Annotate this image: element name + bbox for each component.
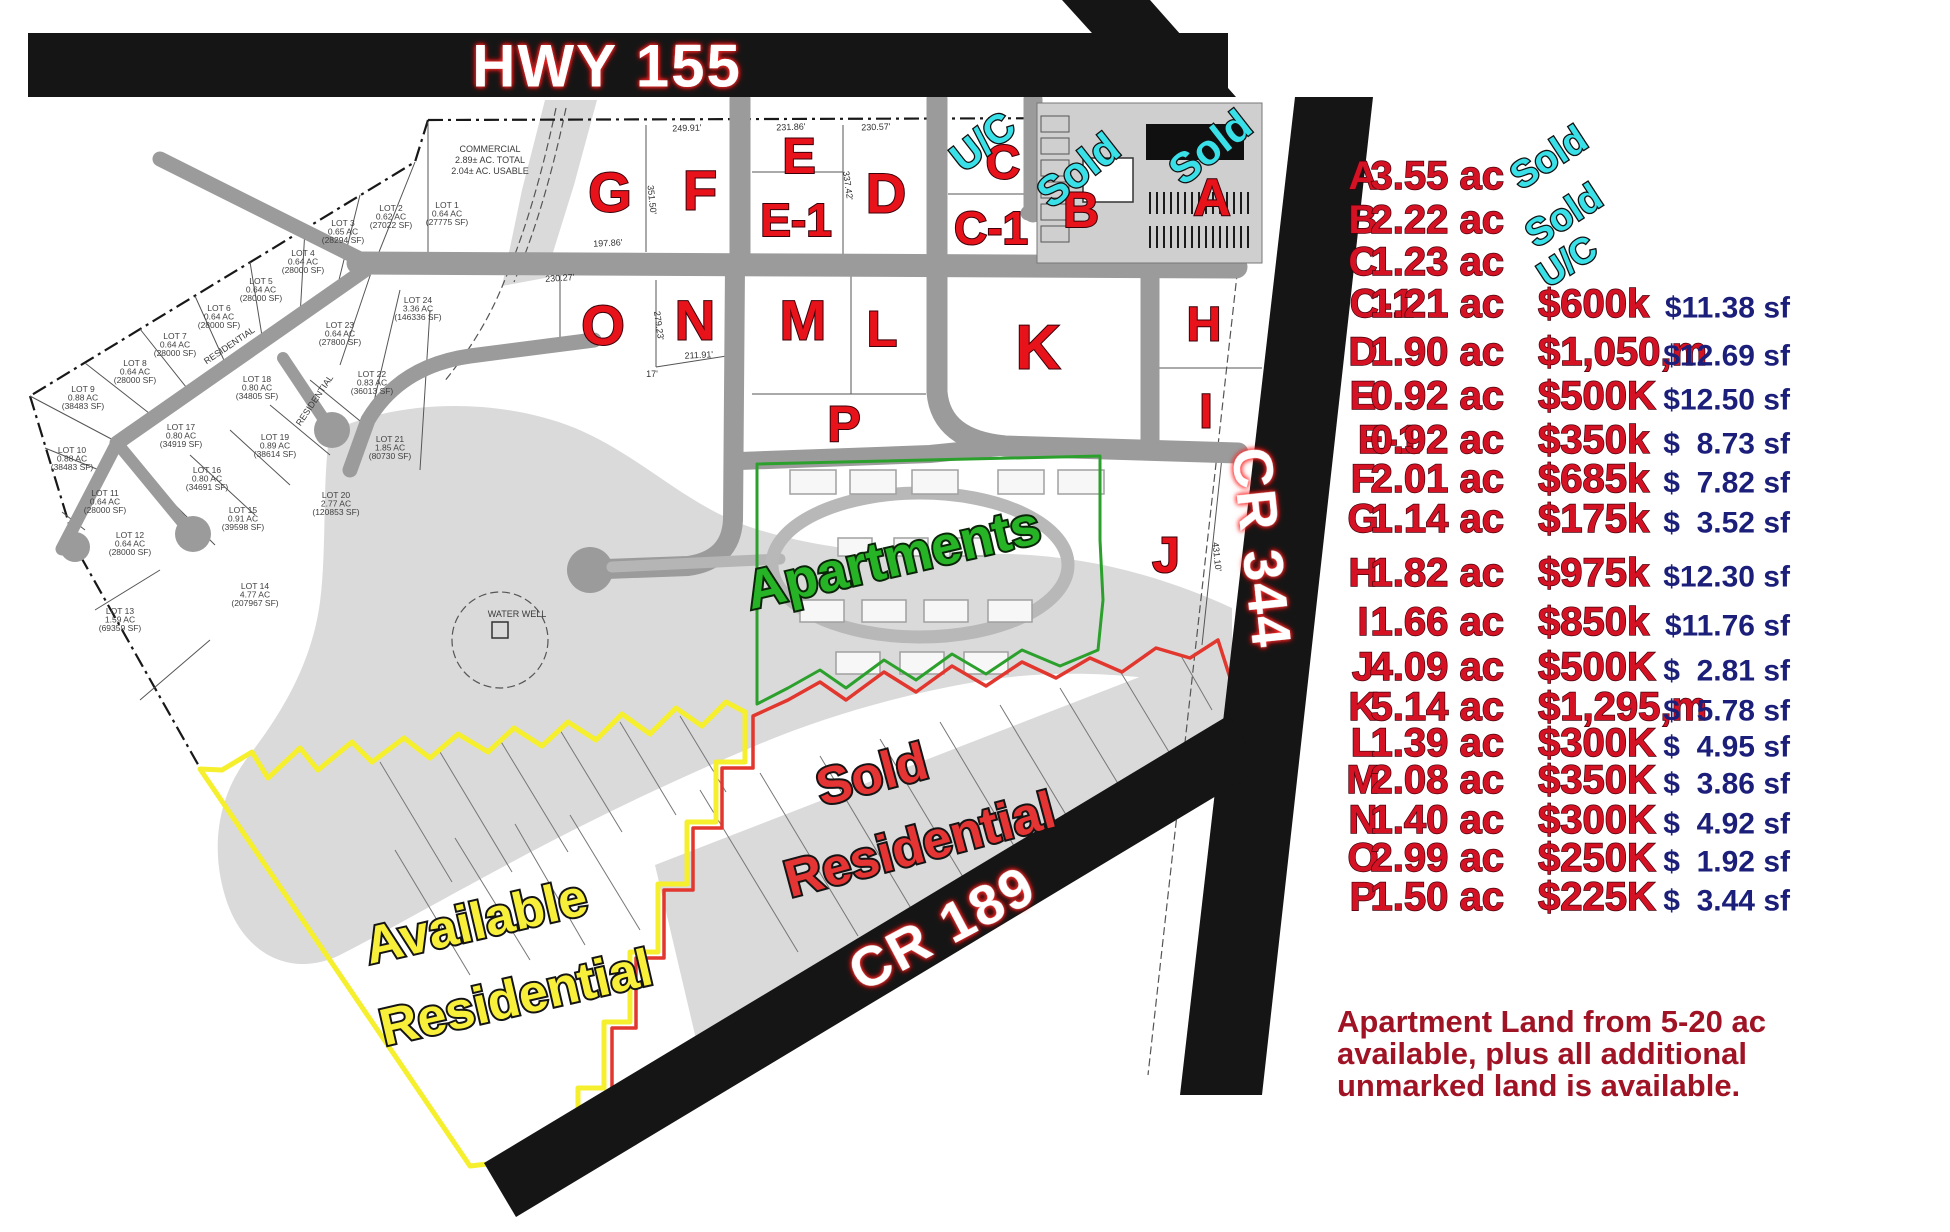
row-price-per-sf: $ 2.81 sf: [1663, 655, 1791, 688]
row-price: $350K: [1538, 758, 1656, 802]
price-table-row-C: C1.23 ac: [1349, 240, 1504, 284]
apartment-building: [836, 652, 880, 674]
culdesac-bulb-3: [60, 532, 90, 562]
hwy-155-label: HWY 155: [472, 33, 742, 100]
price-table-row-B: B2.22 ac: [1349, 198, 1504, 242]
culdesac-bulb-2: [175, 516, 211, 552]
row-price-per-sf: $ 8.73 sf: [1663, 428, 1791, 461]
row-price-per-sf: $ 4.92 sf: [1663, 808, 1791, 841]
small-label-2: 2.04± AC. USABLE: [451, 166, 528, 176]
parcel-label-J: J: [1152, 527, 1180, 583]
small-label-1: 2.89± AC. TOTAL: [455, 155, 525, 165]
parcel-label-L: L: [867, 301, 898, 357]
availability-note: Apartment Land from 5-20 ac available, p…: [1337, 1004, 1766, 1103]
row-price: $500K: [1538, 645, 1656, 689]
apartment-building: [998, 470, 1044, 494]
row-price: $250K: [1538, 836, 1656, 880]
parcel-label-F: F: [683, 159, 717, 222]
row-id: I: [1357, 600, 1368, 644]
apartment-building: [988, 600, 1032, 622]
culdesac-bulb-1: [314, 412, 350, 448]
parcel-label-M: M: [780, 289, 827, 352]
site-plan-page: HWY 155 CR 344 CR 189 Apartments Availab…: [0, 0, 1950, 1232]
row-area: 2.99 ac: [1371, 836, 1504, 880]
dimension-label-10: 17': [646, 369, 658, 379]
note-line-3: unmarked land is available.: [1337, 1068, 1740, 1103]
row-price-per-sf: $ 1.92 sf: [1663, 846, 1791, 879]
row-price-per-sf: $ 7.82 sf: [1663, 467, 1791, 500]
parcel-label-E-1: E-1: [760, 194, 832, 246]
apartment-building: [1058, 470, 1104, 494]
apartment-building: [850, 470, 896, 494]
row-area: 1.90 ac: [1371, 330, 1504, 374]
note-line-2: available, plus all additional: [1337, 1036, 1747, 1071]
note-line-1: Apartment Land from 5-20 ac: [1337, 1004, 1766, 1039]
row-price-per-sf: $ 5.78 sf: [1663, 695, 1791, 728]
row-area: 1.21 ac: [1371, 282, 1504, 326]
row-area: 0.92 ac: [1371, 418, 1504, 462]
parcel-label-C-1: C-1: [954, 202, 1028, 254]
row-area: 4.09 ac: [1371, 645, 1504, 689]
row-price: $350k: [1538, 418, 1650, 462]
row-area: 1.66 ac: [1371, 600, 1504, 644]
row-price: $975k: [1538, 551, 1650, 595]
parcel-label-I: I: [1199, 386, 1212, 439]
row-area: 2.01 ac: [1371, 457, 1504, 501]
small-label-3: WATER WELL: [488, 609, 547, 619]
parcel-label-P: P: [827, 396, 860, 452]
small-label-0: COMMERCIAL: [459, 144, 520, 154]
dimension-label-2: 230.57': [861, 121, 891, 132]
row-price-per-sf: $ 3.52 sf: [1663, 507, 1791, 540]
row-area: 1.50 ac: [1371, 875, 1504, 919]
apartment-building: [862, 600, 906, 622]
row-price: $500K: [1538, 374, 1656, 418]
parcel-label-G: G: [588, 161, 632, 224]
row-price: $175k: [1538, 497, 1650, 541]
row-price-per-sf: $ 4.95 sf: [1663, 731, 1791, 764]
apartment-building: [790, 470, 836, 494]
row-area: 1.23 ac: [1371, 240, 1504, 284]
row-area: 2.08 ac: [1371, 758, 1504, 802]
row-price: $685k: [1538, 457, 1650, 501]
row-price-per-sf: $ 3.86 sf: [1663, 768, 1791, 801]
parcel-label-E: E: [782, 128, 815, 184]
culdesac-bulb-4: [567, 547, 613, 593]
apartment-building: [912, 470, 958, 494]
row-price: $850k: [1538, 600, 1650, 644]
dimension-label-4: 230.27': [545, 272, 575, 284]
row-area: 0.92 ac: [1371, 374, 1504, 418]
row-price-per-sf: $12.30 sf: [1663, 561, 1791, 594]
parcel-label-D: D: [866, 162, 906, 225]
plat-map-canvas: HWY 155 CR 344 CR 189 Apartments Availab…: [0, 0, 1950, 1232]
row-price-per-sf: $11.38 sf: [1665, 292, 1791, 325]
row-area: 2.22 ac: [1371, 198, 1504, 242]
dimension-label-0: 249.91': [672, 122, 702, 133]
row-area: 1.14 ac: [1371, 497, 1504, 541]
apartment-building: [924, 600, 968, 622]
row-price: $225K: [1538, 875, 1656, 919]
main-street: [358, 263, 1236, 267]
parcel-label-O: O: [581, 294, 625, 357]
dimension-label-3: 197.86': [593, 237, 623, 249]
price-table-row-A: A3.55 ac: [1349, 154, 1504, 198]
row-price-per-sf: $11.76 sf: [1665, 610, 1791, 643]
parcel-label-K: K: [1016, 314, 1061, 383]
row-price-per-sf: $12.50 sf: [1663, 384, 1791, 417]
row-area: 3.55 ac: [1371, 154, 1504, 198]
row-price-per-sf: $12.69 sf: [1663, 340, 1791, 373]
row-area: 1.82 ac: [1371, 551, 1504, 595]
parcel-label-H: H: [1187, 299, 1222, 352]
parcel-label-N: N: [675, 289, 715, 352]
row-price-per-sf: $ 3.44 sf: [1663, 885, 1791, 918]
